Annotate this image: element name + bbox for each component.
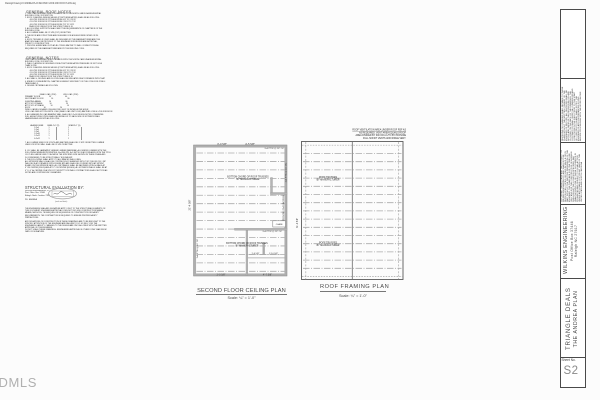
svg-text:1'-0 5/8": 1'-0 5/8" bbox=[251, 253, 259, 255]
svg-text:2x4 PTW @ 16" OC: 2x4 PTW @ 16" OC bbox=[262, 231, 282, 233]
svg-text:BY MANUFACTURER: BY MANUFACTURER bbox=[237, 178, 260, 181]
svg-text:31'-0 5/8": 31'-0 5/8" bbox=[296, 218, 299, 228]
svg-text:21'-4 5/8": 21'-4 5/8" bbox=[187, 199, 191, 210]
svg-text:AS REQUIRED. VENT AREA EQUALS: AS REQUIRED. VENT AREA EQUALS ROOF bbox=[359, 131, 407, 134]
svg-text:4'-5 5/8": 4'-5 5/8" bbox=[245, 142, 255, 146]
svg-text:ROOF VENTILATION AREA UNDER R: ROOF VENTILATION AREA UNDER ROOF RSF AS bbox=[352, 129, 406, 132]
svg-text:PROVIDE 22x30 ACCESS: PROVIDE 22x30 ACCESS bbox=[282, 195, 285, 221]
svg-text:2x4 PTW @ 16" OC: 2x4 PTW @ 16" OC bbox=[197, 238, 199, 258]
svg-text:BY MANUFACTURER: BY MANUFACTURER bbox=[236, 244, 259, 247]
svg-text:BY MANUFACTURER: BY MANUFACTURER bbox=[317, 179, 340, 182]
svg-text:2x4 PTW @ 16" OC: 2x4 PTW @ 16" OC bbox=[286, 162, 288, 182]
svg-text:AREA DIVIDED BY 300 OR A 1/TO: AREA DIVIDED BY 300 OR A 1/TO BY PROVIDE bbox=[355, 134, 406, 137]
svg-text:1'-0 5/8": 1'-0 5/8" bbox=[216, 273, 225, 276]
svg-text:FULL SOFFIT VENTS AND RIDGE VE: FULL SOFFIT VENTS AND RIDGE VENT. bbox=[363, 137, 406, 140]
svg-text:BY MANUFACTURER: BY MANUFACTURER bbox=[317, 244, 340, 247]
svg-text:3'-0 5/8": 3'-0 5/8" bbox=[217, 142, 227, 146]
svg-text:4'-7 5/8": 4'-7 5/8" bbox=[263, 273, 272, 276]
svg-text:1'-10 5/8": 1'-10 5/8" bbox=[269, 253, 278, 255]
svg-text:2x4 PTW @ 16" OC: 2x4 PTW @ 16" OC bbox=[264, 148, 284, 150]
svg-text:CHASE: CHASE bbox=[276, 223, 284, 226]
